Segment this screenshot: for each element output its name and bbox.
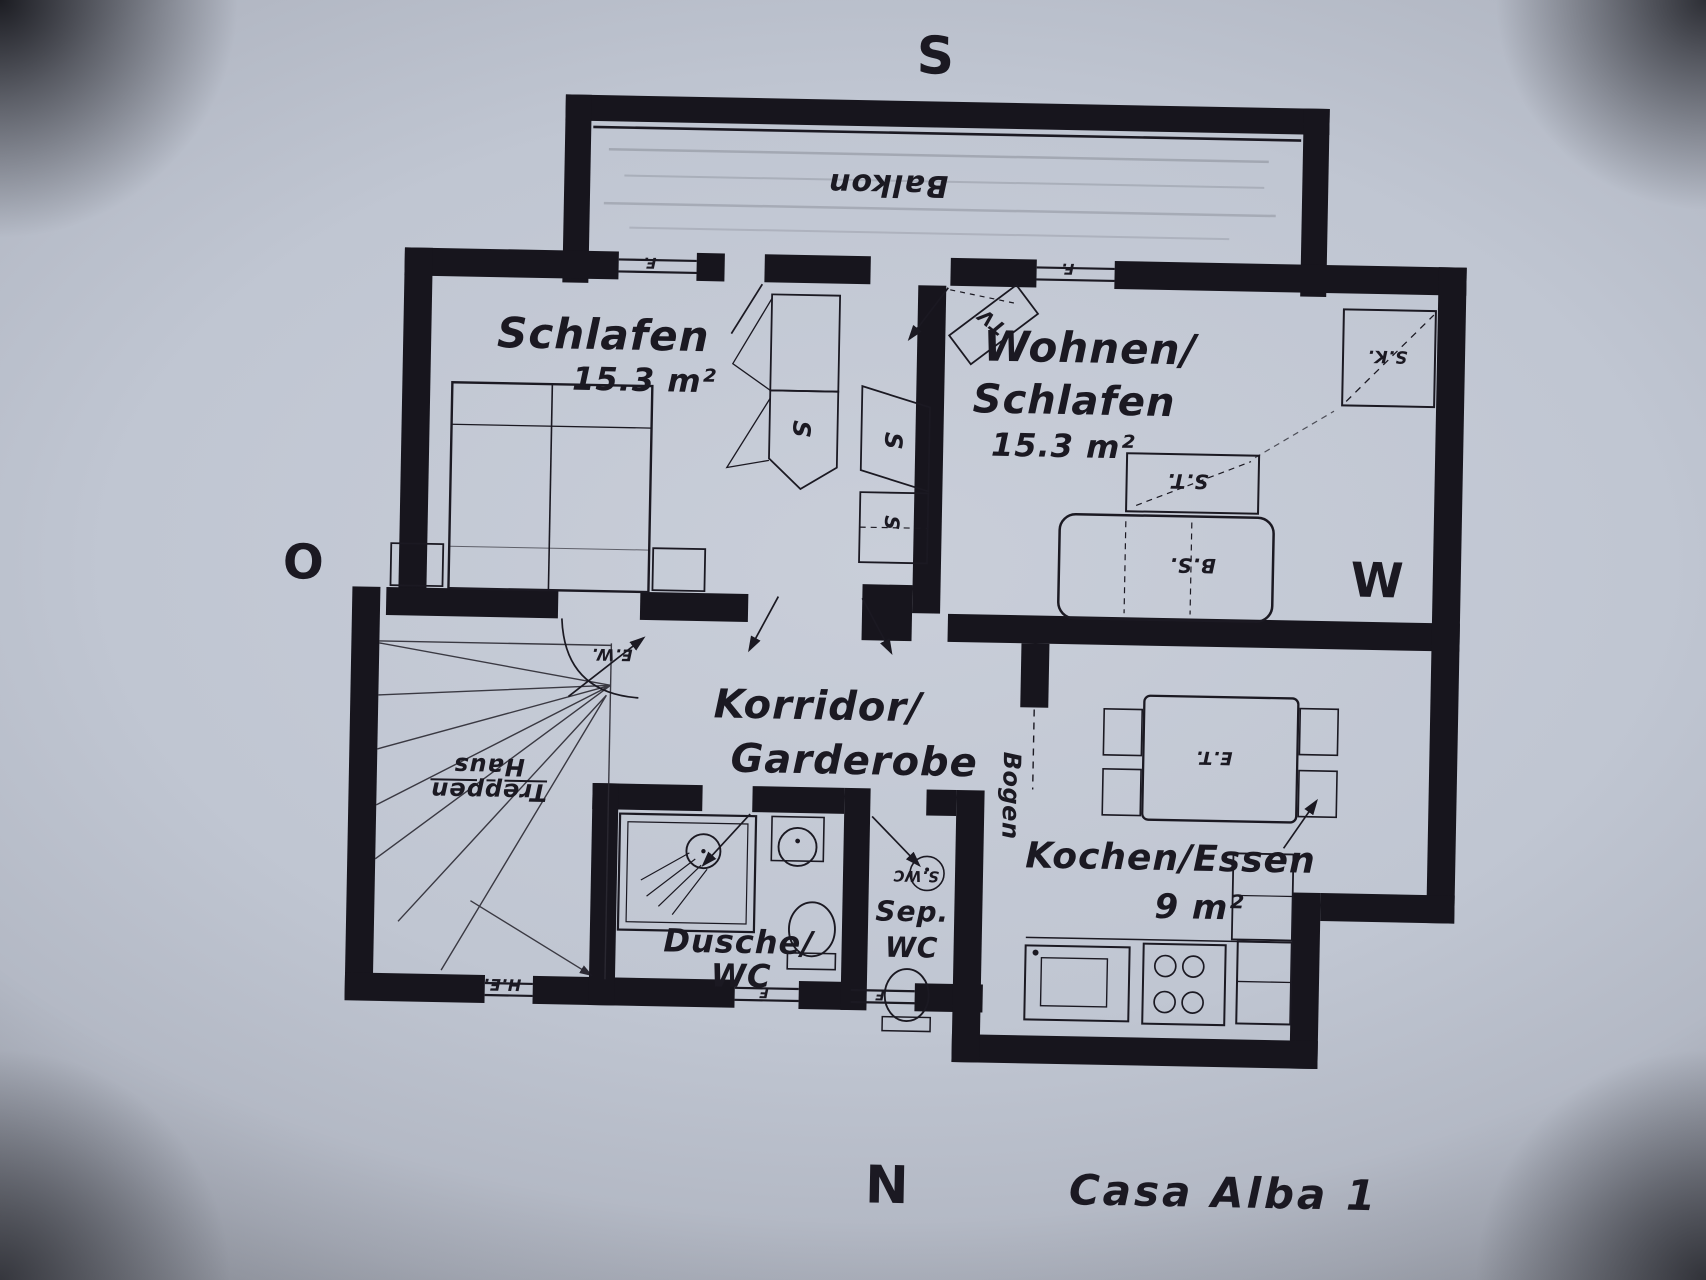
floor-plan: S O W N Casa Alba 1 Balkon Schlafen 15.3… <box>0 0 1706 1280</box>
room-label-korridor-1: Korridor/ <box>688 683 949 730</box>
stairwell-label-line1: Treppen <box>402 777 574 805</box>
house-entry-mark: H.E. <box>483 975 522 993</box>
room-label-sepwc-1: Sep. <box>872 896 953 927</box>
compass-east: O <box>282 537 324 588</box>
wardrobe-left-label: S <box>788 420 814 440</box>
room-area-wohnen: 15.3 m² <box>963 428 1164 465</box>
arch-opening <box>1033 709 1035 789</box>
plan-title: Casa Alba 1 <box>1069 1168 1379 1218</box>
room-label-sepwc-2: WC <box>871 932 952 963</box>
window-mark-wc: F <box>875 986 885 1001</box>
sofa-bed-label: B.S. <box>1169 554 1216 576</box>
room-area-schlafen: 15.3 m² <box>544 362 745 399</box>
washbasin <box>771 816 824 866</box>
room-area-kochen: 9 m² <box>1124 889 1275 928</box>
stairwell-label-line2: Haus <box>403 751 575 779</box>
sepwc-wall-note: S.WC <box>893 867 939 884</box>
room-label-dusche-2: WC <box>681 959 802 995</box>
room-label-dusche-1: Dusche/ <box>653 924 824 961</box>
room-label-korridor-2: Garderobe <box>719 737 990 784</box>
wardrobe-lower-label: S <box>881 515 903 532</box>
side-table-label: S.T. <box>1166 470 1208 492</box>
room-label-kochen: Kochen/Essen <box>1025 837 1296 880</box>
window-mark-schlafen: F. <box>643 254 657 270</box>
wardrobe-right-label: S <box>879 432 905 452</box>
window-mark-wohnen: F. <box>1061 260 1075 276</box>
balcony-label: Balkon <box>798 167 979 202</box>
dining-table-label: E.T. <box>1195 747 1233 767</box>
corner-cabinet-label: S.K. <box>1367 346 1408 365</box>
room-label-schlafen: Schlafen <box>483 311 724 360</box>
bed <box>448 382 652 592</box>
compass-south: S <box>916 29 954 84</box>
compass-west: W <box>1350 556 1404 607</box>
arch-label: Bogen <box>996 719 1024 871</box>
room-label-wohnen-2: Schlafen <box>954 378 1195 425</box>
compass-north: N <box>865 1158 910 1213</box>
stairwell-label: Treppen Haus <box>402 751 575 805</box>
sofa-bed <box>1058 514 1274 622</box>
door-mark-ew: E.W. <box>591 645 633 663</box>
floorplan-photo: S O W N Casa Alba 1 Balkon Schlafen 15.3… <box>0 0 1706 1280</box>
window-mark-bath: F <box>759 984 769 999</box>
